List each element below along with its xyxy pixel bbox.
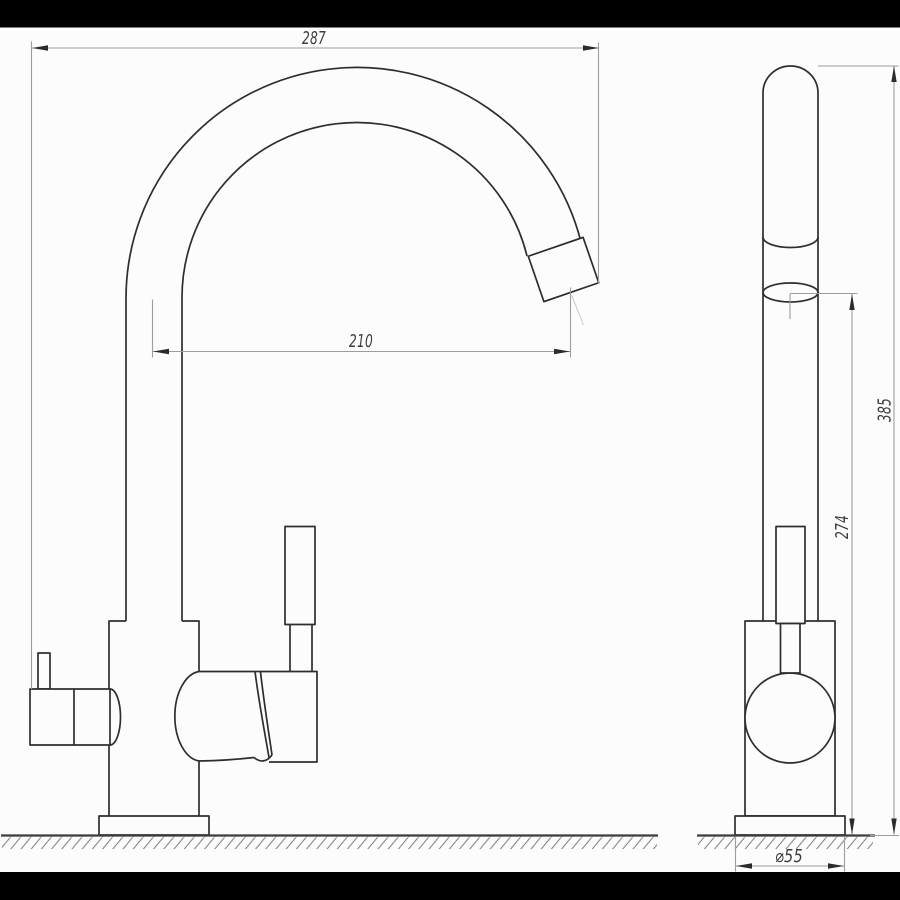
- ground-hatch-front: [2, 837, 657, 850]
- side-lever: [776, 527, 805, 624]
- dim-210-label: 210: [349, 332, 373, 352]
- technical-drawing: 287 210 385 274 ⌀55: [0, 0, 900, 900]
- dim-385-label: 385: [876, 398, 896, 422]
- dim-287-label: 287: [302, 29, 326, 49]
- filter-handle-body: [30, 689, 110, 745]
- mounting-surface: [1, 836, 899, 850]
- side-joint-circle: [745, 673, 835, 763]
- mixer-lever: [285, 527, 315, 625]
- filter-handle-stem: [38, 653, 50, 689]
- dim-d55-label: ⌀55: [775, 847, 803, 867]
- side-lever-stem: [781, 624, 801, 674]
- dim-274-label: 274: [833, 515, 853, 539]
- letterbox-top-bar: [0, 0, 900, 28]
- base-plate-front: [99, 816, 209, 835]
- screenshot-canvas: 287 210 385 274 ⌀55: [0, 0, 900, 900]
- base-plate-side: [735, 816, 845, 835]
- letterbox-bottom-bar: [0, 872, 900, 900]
